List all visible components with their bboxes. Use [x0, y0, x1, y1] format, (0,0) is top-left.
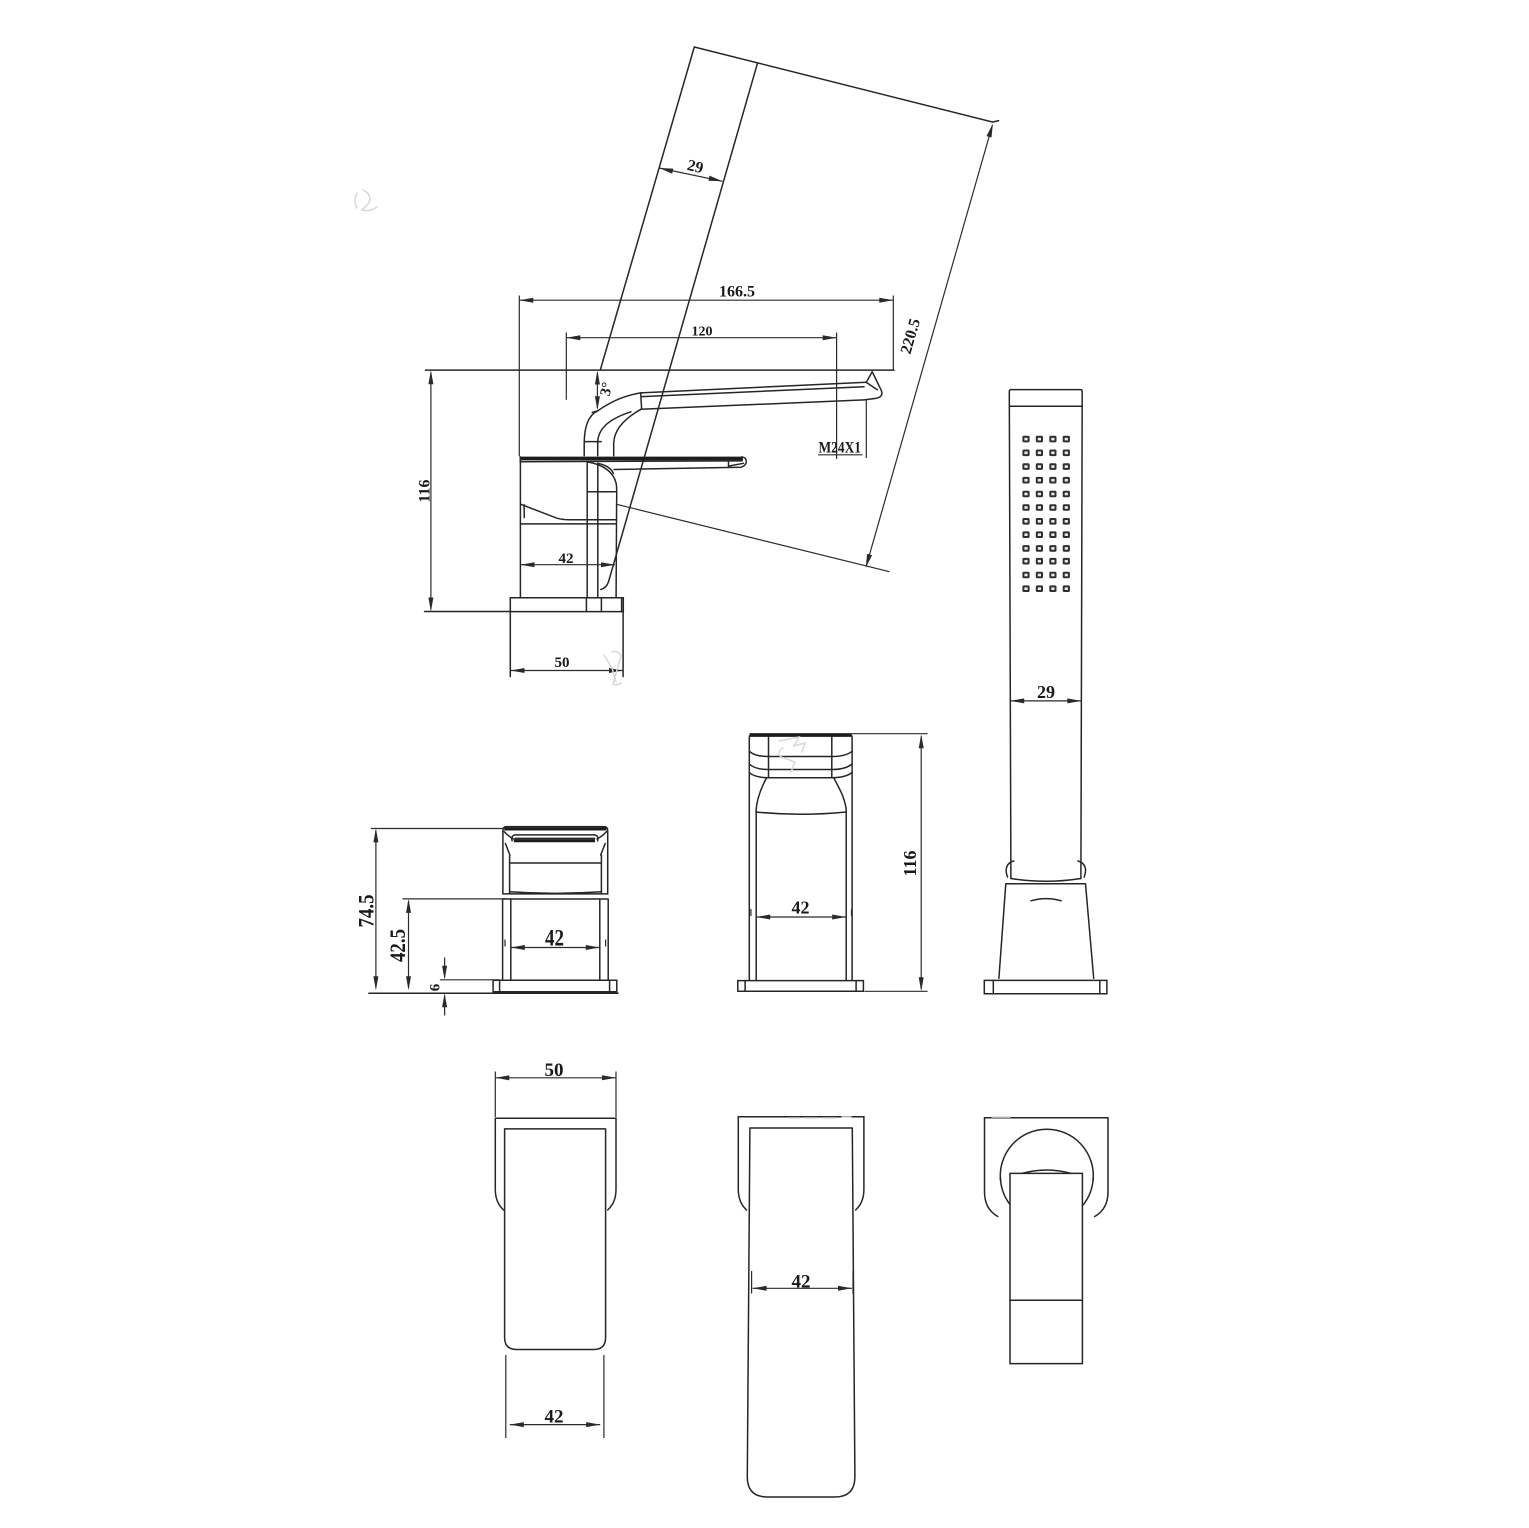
svg-text:42: 42	[792, 898, 810, 918]
svg-text:42: 42	[545, 1407, 564, 1428]
svg-text:6: 6	[428, 983, 444, 991]
svg-text:50: 50	[545, 1060, 564, 1081]
svg-text:42: 42	[559, 551, 574, 567]
svg-text:M24X1: M24X1	[819, 439, 862, 456]
svg-text:166.5: 166.5	[719, 284, 755, 301]
svg-text:120: 120	[692, 325, 713, 340]
svg-text:42: 42	[792, 1272, 811, 1293]
svg-text:42.5: 42.5	[385, 929, 410, 962]
svg-text:74.5: 74.5	[354, 895, 379, 928]
svg-text:116: 116	[900, 850, 920, 876]
svg-text:42: 42	[545, 926, 564, 951]
svg-text:116: 116	[417, 479, 434, 502]
svg-text:29: 29	[1037, 682, 1055, 702]
svg-text:50: 50	[555, 655, 570, 671]
